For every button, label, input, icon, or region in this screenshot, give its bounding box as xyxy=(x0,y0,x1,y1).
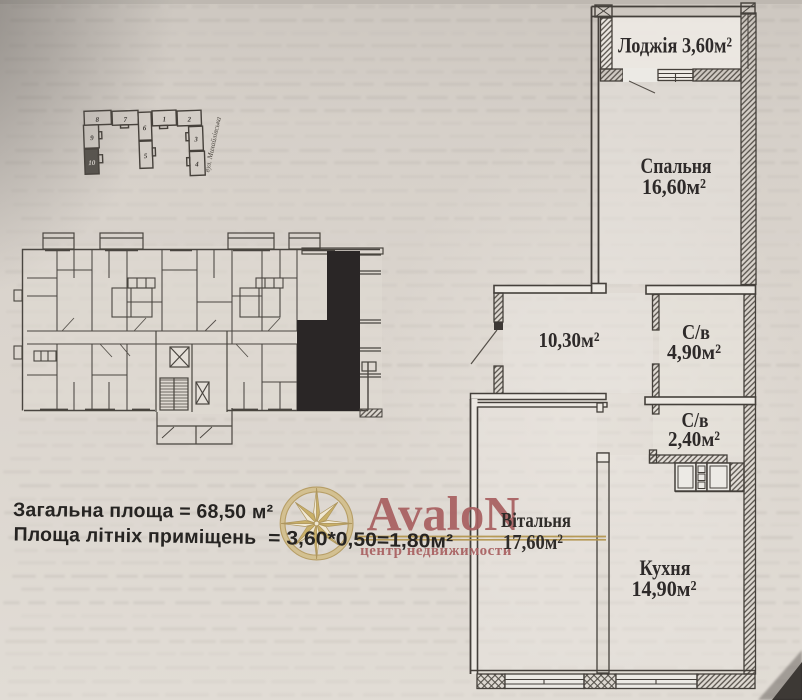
svg-text:Вітальня: Вітальня xyxy=(501,508,571,532)
svg-text:Загальна площа = 68,50 м²: Загальна площа = 68,50 м² xyxy=(13,499,274,523)
svg-text:Лоджія 3,60м²: Лоджія 3,60м² xyxy=(618,33,732,58)
svg-text:16,60м²: 16,60м² xyxy=(642,174,706,199)
svg-text:4,90м²: 4,90м² xyxy=(667,340,721,364)
svg-text:= 3,60*0,50=1,80м²: = 3,60*0,50=1,80м² xyxy=(268,527,454,553)
svg-text:3: 3 xyxy=(193,135,198,143)
svg-text:4: 4 xyxy=(194,160,199,168)
svg-text:14,90м²: 14,90м² xyxy=(632,576,697,601)
svg-text:2,40м²: 2,40м² xyxy=(668,427,720,451)
svg-text:Площа літніх приміщень: Площа літніх приміщень xyxy=(13,524,256,549)
svg-text:10,30м²: 10,30м² xyxy=(539,328,600,352)
svg-text:2: 2 xyxy=(186,116,191,124)
svg-text:1: 1 xyxy=(162,115,166,123)
svg-text:17,60м²: 17,60м² xyxy=(503,530,563,554)
